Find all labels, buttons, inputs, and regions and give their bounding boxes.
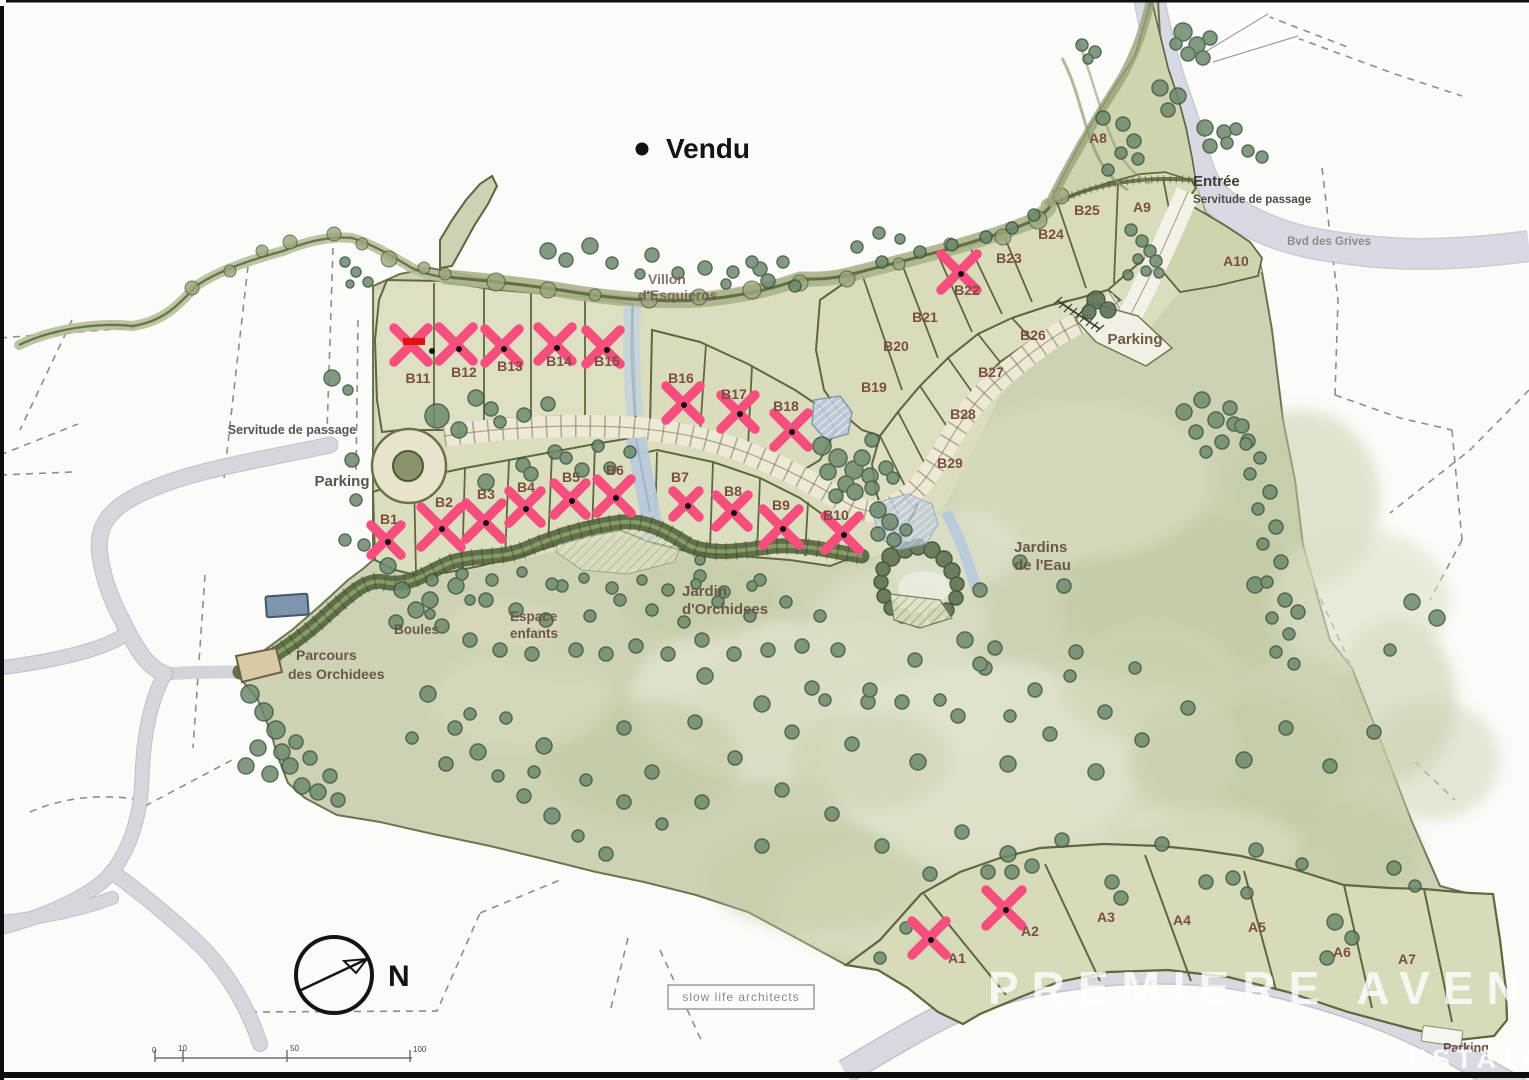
svg-text:B17: B17 [721,386,747,402]
svg-text:A3: A3 [1097,909,1115,925]
svg-text:Jardins: Jardins [1014,539,1067,556]
svg-text:B29: B29 [937,455,963,471]
svg-text:B5: B5 [562,469,580,485]
svg-text:d'Orchidees: d'Orchidees [682,601,768,618]
svg-text:B27: B27 [978,364,1004,380]
svg-text:B13: B13 [497,358,523,374]
svg-text:A2: A2 [1021,923,1039,939]
svg-text:B14: B14 [546,353,572,369]
svg-text:A8: A8 [1089,130,1107,146]
svg-text:A4: A4 [1173,912,1191,928]
svg-text:A1: A1 [948,950,966,966]
svg-text:slow life architects: slow life architects [682,990,799,1004]
svg-text:Servitude de passage: Servitude de passage [1193,194,1311,206]
svg-text:B21: B21 [912,309,938,325]
svg-text:B1: B1 [380,511,398,527]
svg-text:B15: B15 [594,353,620,369]
svg-text:B18: B18 [773,398,799,414]
svg-text:B16: B16 [668,370,694,386]
svg-text:de l'Eau: de l'Eau [1014,557,1071,574]
svg-text:N: N [388,960,410,993]
svg-text:Parking: Parking [314,473,369,490]
svg-text:A9: A9 [1133,199,1151,215]
svg-text:B12: B12 [451,364,477,380]
svg-text:B7: B7 [671,469,689,485]
svg-text:PREMIERE AVENUE: PREMIERE AVENUE [988,962,1529,1014]
svg-text:B9: B9 [772,497,790,513]
svg-text:des Orchidees: des Orchidees [288,666,385,682]
svg-text:10: 10 [178,1044,187,1053]
svg-text:B2: B2 [435,494,453,510]
svg-text:Bvd des Grives: Bvd des Grives [1287,236,1371,248]
svg-text:B25: B25 [1074,202,1100,218]
svg-text:B10: B10 [823,507,849,523]
svg-text:Parking: Parking [1107,331,1162,348]
svg-text:A6: A6 [1333,944,1351,960]
svg-text:Servitude de passage: Servitude de passage [228,423,357,437]
svg-text:B28: B28 [950,406,976,422]
svg-text:B3: B3 [477,486,495,502]
svg-text:0: 0 [152,1046,157,1055]
svg-text:B11: B11 [406,370,431,386]
svg-text:B4: B4 [517,479,535,495]
svg-text:100: 100 [413,1045,427,1054]
svg-text:A10: A10 [1223,253,1249,269]
svg-text:B22: B22 [954,282,980,298]
svg-text:B24: B24 [1038,226,1064,242]
svg-text:Espace: Espace [510,609,558,624]
svg-text:B26: B26 [1020,327,1046,343]
svg-text:B20: B20 [883,338,909,354]
svg-text:B6: B6 [606,462,624,478]
svg-text:A5: A5 [1248,919,1266,935]
svg-text:B23: B23 [996,250,1022,266]
svg-text:B19: B19 [861,379,887,395]
svg-text:Vendu: Vendu [666,133,750,164]
svg-text:ESTATE: ESTATE [1408,1044,1529,1074]
svg-text:Parcours: Parcours [296,647,357,663]
svg-text:50: 50 [290,1044,299,1053]
svg-text:Entrée: Entrée [1193,173,1240,190]
svg-text:Villon: Villon [648,271,686,287]
svg-text:d'Esquieros: d'Esquieros [638,287,718,303]
svg-text:Boules: Boules [394,622,439,637]
svg-text:Jardin: Jardin [682,583,727,600]
svg-text:B8: B8 [724,483,742,499]
svg-text:enfants: enfants [510,626,558,641]
